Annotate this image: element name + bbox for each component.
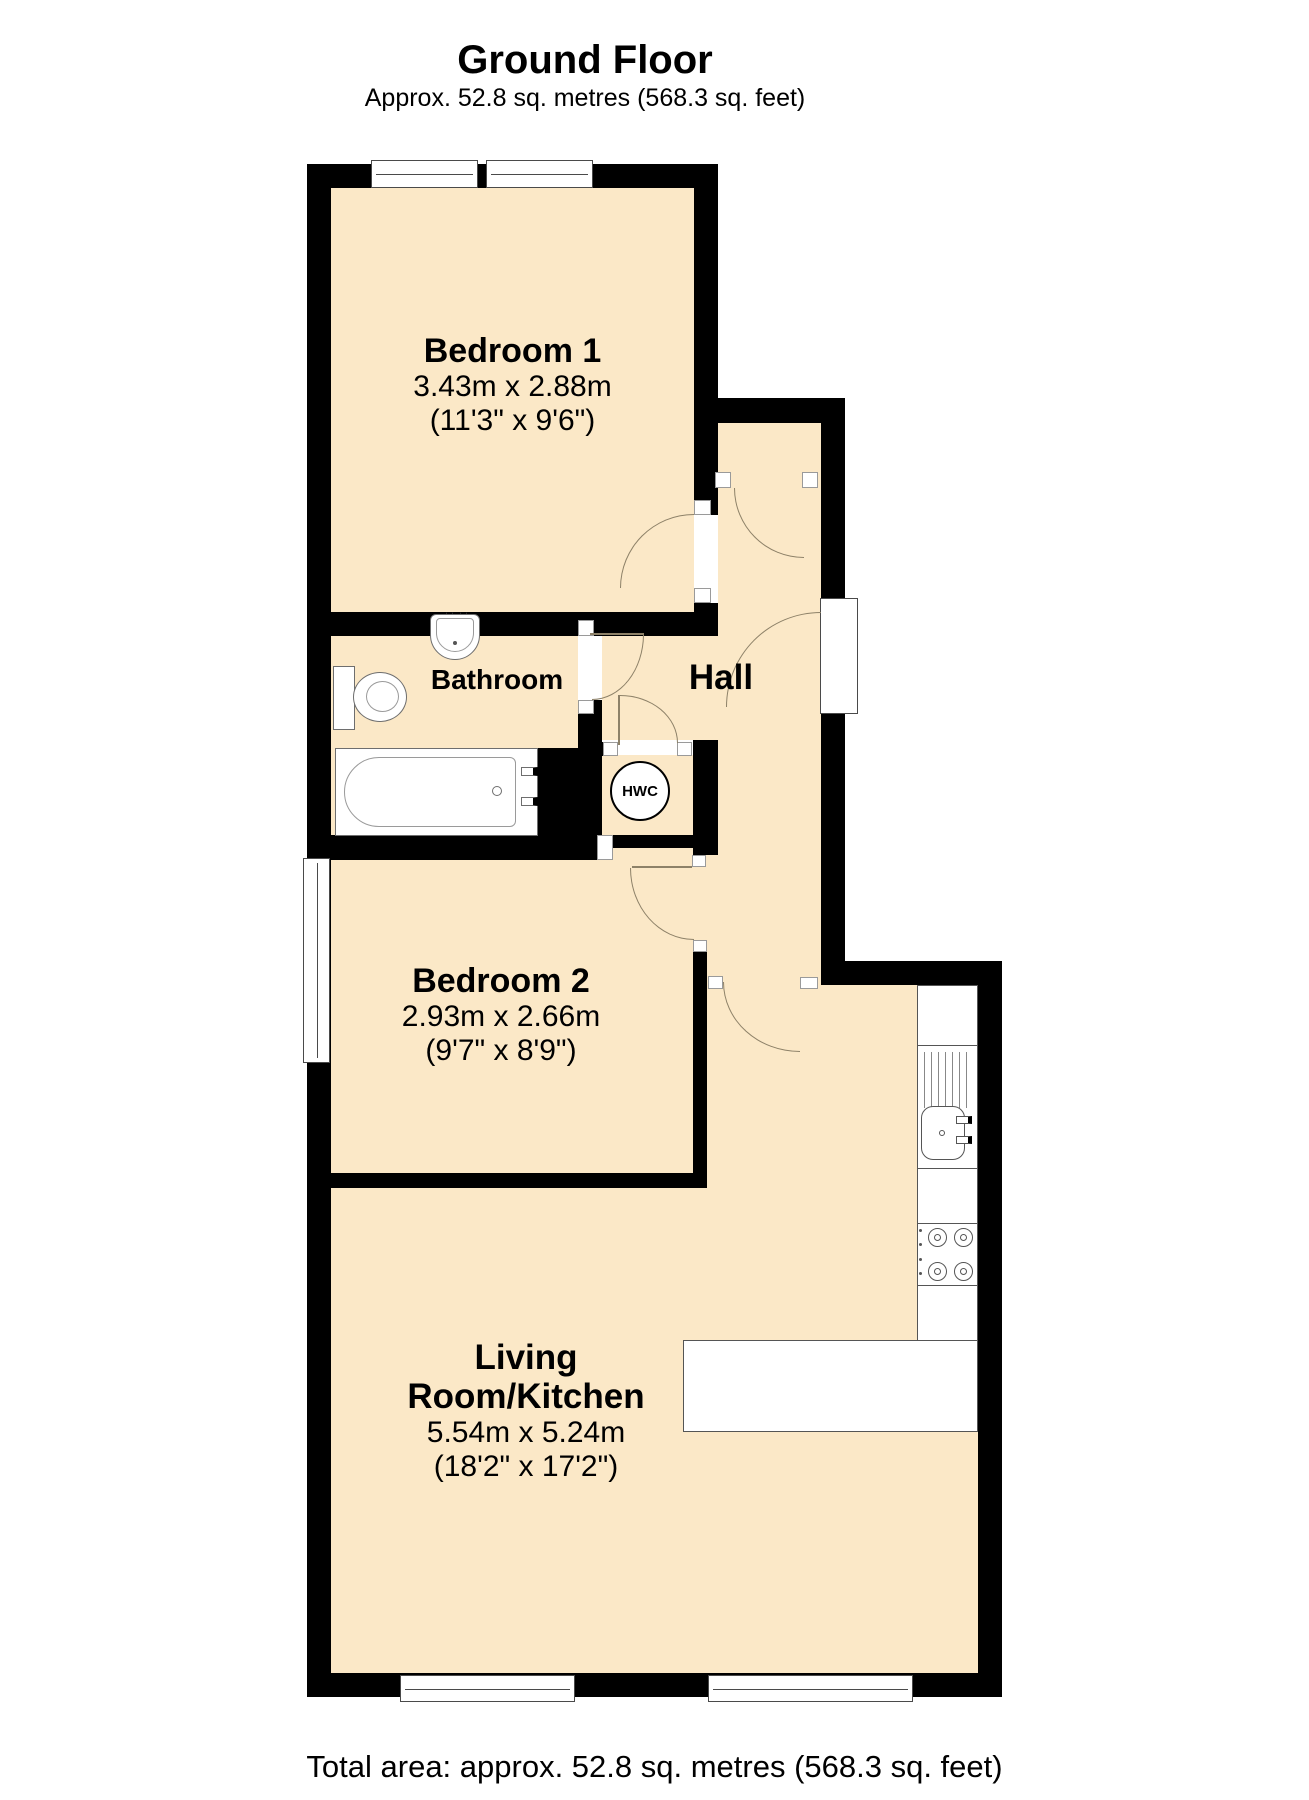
drainer-line-3 [938, 1052, 939, 1108]
page-title: Ground Floor [0, 38, 1170, 83]
wall-bedroom2-bottom [307, 1173, 707, 1188]
wall-bedroom1-bottom [307, 612, 718, 636]
bathtub-drain [492, 786, 502, 796]
bedroom2-window [303, 858, 330, 1063]
counter-divider-4 [917, 1285, 978, 1286]
drainer-line-2 [931, 1052, 932, 1108]
livingroom-dim-metric: 5.54m x 5.24m [331, 1416, 721, 1450]
bedroom2-name: Bedroom 2 [331, 962, 671, 1000]
livingroom-door-jamb-right [800, 977, 818, 989]
bathroom-label: Bathroom [372, 664, 622, 695]
hwc-label: HWC [622, 783, 658, 800]
wall-bedroom2-top-thin [613, 835, 693, 848]
hob-control-dot-4 [919, 1272, 922, 1275]
hwc-cylinder: HWC [610, 761, 670, 821]
hob-burner-1-inner [934, 1234, 941, 1241]
toilet-cistern [333, 666, 355, 730]
bedroom1-window-left [371, 160, 478, 188]
bathroom-name: Bathroom [431, 664, 563, 695]
entrance-door-frame [820, 598, 858, 714]
livingroom-window-left [400, 1675, 575, 1702]
kitchen-counter-peninsula [683, 1340, 978, 1432]
hob-burner-2-inner [960, 1234, 967, 1241]
bedroom1-door-jamb-top [694, 500, 711, 515]
wall-bedroom2-right [693, 952, 707, 1173]
counter-divider-3 [917, 1223, 978, 1224]
closet-door-jamb-left [603, 742, 618, 756]
drainer-line-6 [959, 1052, 960, 1108]
vestibule-door-jamb-left [715, 472, 731, 488]
livingroom-label: Living Room/Kitchen 5.54m x 5.24m (18'2"… [331, 1338, 721, 1484]
bathtub-tap-bottom [521, 797, 538, 806]
livingroom-name-line2: Room/Kitchen [331, 1377, 721, 1416]
wall-bedroom2-top [307, 835, 597, 860]
bedroom2-dim-metric: 2.93m x 2.66m [331, 1000, 671, 1034]
bedroom2-label: Bedroom 2 2.93m x 2.66m (9'7" x 8'9") [331, 962, 671, 1067]
hall-name: Hall [689, 658, 753, 697]
bedroom1-dim-imperial: (11'3" x 9'6") [331, 404, 694, 438]
hob-burner-3-inner [934, 1268, 941, 1275]
wall-bedroom1-right-upper [694, 164, 718, 515]
bedroom1-name: Bedroom 1 [331, 332, 694, 370]
closet-door-jamb-right [677, 742, 692, 756]
basin-drain-dot [453, 641, 457, 645]
floor-plan: Ground Floor Approx. 52.8 sq. metres (56… [0, 0, 1309, 1800]
hob-control-dot-1 [919, 1229, 922, 1232]
bathroom-door-jamb-bottom [578, 700, 594, 714]
livingroom-window-right [708, 1675, 913, 1702]
kitchen-tap-bottom [956, 1136, 972, 1144]
page-subtitle: Approx. 52.8 sq. metres (568.3 sq. feet) [0, 84, 1170, 112]
hob-control-dot-3 [919, 1258, 922, 1261]
total-area-footer: Total area: approx. 52.8 sq. metres (568… [0, 1750, 1309, 1785]
bedroom2-dim-imperial: (9'7" x 8'9") [331, 1034, 671, 1068]
bedroom1-dim-metric: 3.43m x 2.88m [331, 370, 694, 404]
wall-right [978, 961, 1002, 1697]
wall-hall-top [718, 398, 845, 423]
bedroom1-label: Bedroom 1 3.43m x 2.88m (11'3" x 9'6") [331, 332, 694, 437]
bedroom2-door-jamb-right [692, 855, 706, 867]
wall-closet-right [693, 740, 718, 855]
drainer-line-7 [966, 1052, 967, 1108]
counter-divider-2 [917, 1168, 978, 1169]
drainer-line-1 [924, 1052, 925, 1108]
wall-closet-top-left [590, 742, 603, 756]
bedroom1-door-jamb-bottom [694, 588, 711, 603]
hall-label: Hall [646, 658, 796, 697]
hob-control-dot-2 [919, 1243, 922, 1246]
bedroom2-door-jamb-left [597, 835, 613, 860]
bathtub-inner [344, 757, 516, 827]
counter-divider-1 [917, 1045, 978, 1046]
drainer-line-4 [945, 1052, 946, 1108]
hob-burner-4-inner [960, 1268, 967, 1275]
bedroom2-wall-jamb [693, 940, 707, 952]
wall-kitchen-top [821, 961, 1002, 985]
livingroom-dim-imperial: (18'2" x 17'2") [331, 1450, 721, 1484]
vestibule-door-jamb-right [802, 472, 818, 488]
bedroom1-window-right [486, 160, 593, 188]
bathtub-tap-top [521, 767, 538, 776]
kitchen-sink-drain [939, 1130, 945, 1136]
livingroom-door-jamb-left [708, 976, 723, 989]
wall-hall-right-upper [821, 398, 845, 608]
wall-hall-right-lower [821, 707, 845, 985]
livingroom-name-line1: Living [331, 1338, 721, 1377]
kitchen-tap-top [956, 1116, 972, 1124]
drainer-line-5 [952, 1052, 953, 1108]
